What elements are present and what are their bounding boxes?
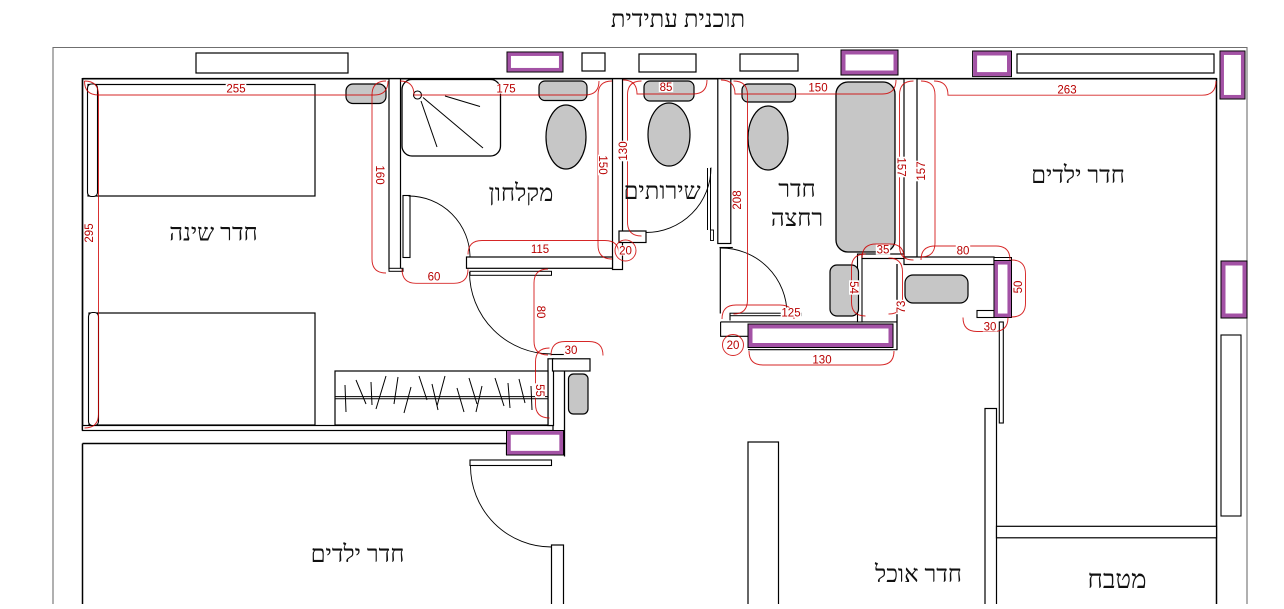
svg-text:157: 157 xyxy=(916,161,928,180)
svg-text:157: 157 xyxy=(895,157,907,176)
svg-text:263: 263 xyxy=(1057,85,1076,97)
svg-text:160: 160 xyxy=(373,165,385,184)
svg-text:30: 30 xyxy=(565,345,578,357)
svg-text:חדר ילדים: חדר ילדים xyxy=(311,542,405,568)
svg-text:60: 60 xyxy=(428,272,441,284)
svg-text:208: 208 xyxy=(732,190,744,209)
svg-text:שירותים: שירותים xyxy=(623,179,700,205)
svg-text:30: 30 xyxy=(984,322,997,334)
svg-text:רחצה: רחצה xyxy=(771,206,823,232)
svg-text:150: 150 xyxy=(808,83,827,95)
svg-text:מטבח: מטבח xyxy=(1087,565,1146,594)
svg-text:50: 50 xyxy=(1013,281,1025,294)
svg-text:175: 175 xyxy=(496,84,515,96)
svg-text:55: 55 xyxy=(533,384,545,397)
svg-text:255: 255 xyxy=(226,84,245,96)
svg-text:חדר: חדר xyxy=(778,177,816,203)
svg-text:תוכנית עתידית: תוכנית עתידית xyxy=(611,7,745,33)
svg-text:85: 85 xyxy=(660,82,673,94)
svg-text:חדר אוכל: חדר אוכל xyxy=(874,562,962,588)
svg-text:20: 20 xyxy=(727,340,740,352)
svg-text:115: 115 xyxy=(531,244,549,256)
svg-text:20: 20 xyxy=(619,246,632,258)
svg-text:54: 54 xyxy=(847,281,859,294)
svg-text:130: 130 xyxy=(618,141,630,160)
svg-text:73: 73 xyxy=(896,301,908,314)
svg-text:125: 125 xyxy=(781,308,800,320)
svg-text:295: 295 xyxy=(84,223,96,242)
svg-text:חדר ילדים: חדר ילדים xyxy=(1031,163,1125,189)
svg-text:חדר שינה: חדר שינה xyxy=(169,221,257,247)
svg-text:35: 35 xyxy=(877,245,890,257)
svg-text:מקלחון: מקלחון xyxy=(489,181,554,207)
svg-text:80: 80 xyxy=(534,306,546,319)
svg-text:130: 130 xyxy=(812,355,831,367)
svg-text:150: 150 xyxy=(596,155,608,174)
svg-text:80: 80 xyxy=(957,246,970,258)
